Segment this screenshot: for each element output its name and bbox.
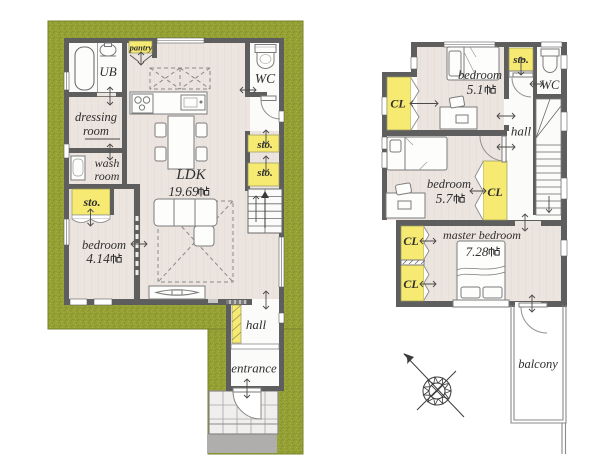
svg-text:bedroom: bedroom xyxy=(427,177,471,191)
svg-text:entrance: entrance xyxy=(231,361,277,376)
svg-text:wash: wash xyxy=(95,156,120,170)
svg-text:WC: WC xyxy=(255,71,276,86)
svg-text:4.14: 4.14 xyxy=(86,251,110,266)
svg-text:7.28: 7.28 xyxy=(466,244,489,259)
svg-text:dressing: dressing xyxy=(75,110,117,124)
svg-text:5.7: 5.7 xyxy=(436,191,454,206)
svg-text:CL: CL xyxy=(390,97,405,111)
svg-text:WC: WC xyxy=(541,78,560,92)
svg-text:room: room xyxy=(83,124,109,138)
svg-text:sto.: sto. xyxy=(256,139,273,151)
svg-text:hall: hall xyxy=(246,317,267,332)
svg-text:sto.: sto. xyxy=(512,54,529,66)
svg-text:5.1: 5.1 xyxy=(467,82,484,97)
svg-text:LDK: LDK xyxy=(175,167,206,183)
svg-text:sto.: sto. xyxy=(82,195,100,209)
svg-text:master bedroom: master bedroom xyxy=(443,228,521,242)
svg-text:pantry: pantry xyxy=(129,43,153,53)
svg-text:UB: UB xyxy=(99,64,116,79)
svg-text:balcony: balcony xyxy=(518,357,558,371)
svg-text:sto.: sto. xyxy=(256,167,273,179)
svg-text:CL: CL xyxy=(487,185,502,199)
svg-text:CL: CL xyxy=(403,277,418,291)
svg-text:hall: hall xyxy=(511,124,532,139)
svg-text:CL: CL xyxy=(403,234,418,248)
svg-text:room: room xyxy=(95,169,120,183)
svg-text:bedroom: bedroom xyxy=(82,238,126,252)
svg-text:bedroom: bedroom xyxy=(458,68,502,82)
svg-text:19.69: 19.69 xyxy=(168,184,199,199)
